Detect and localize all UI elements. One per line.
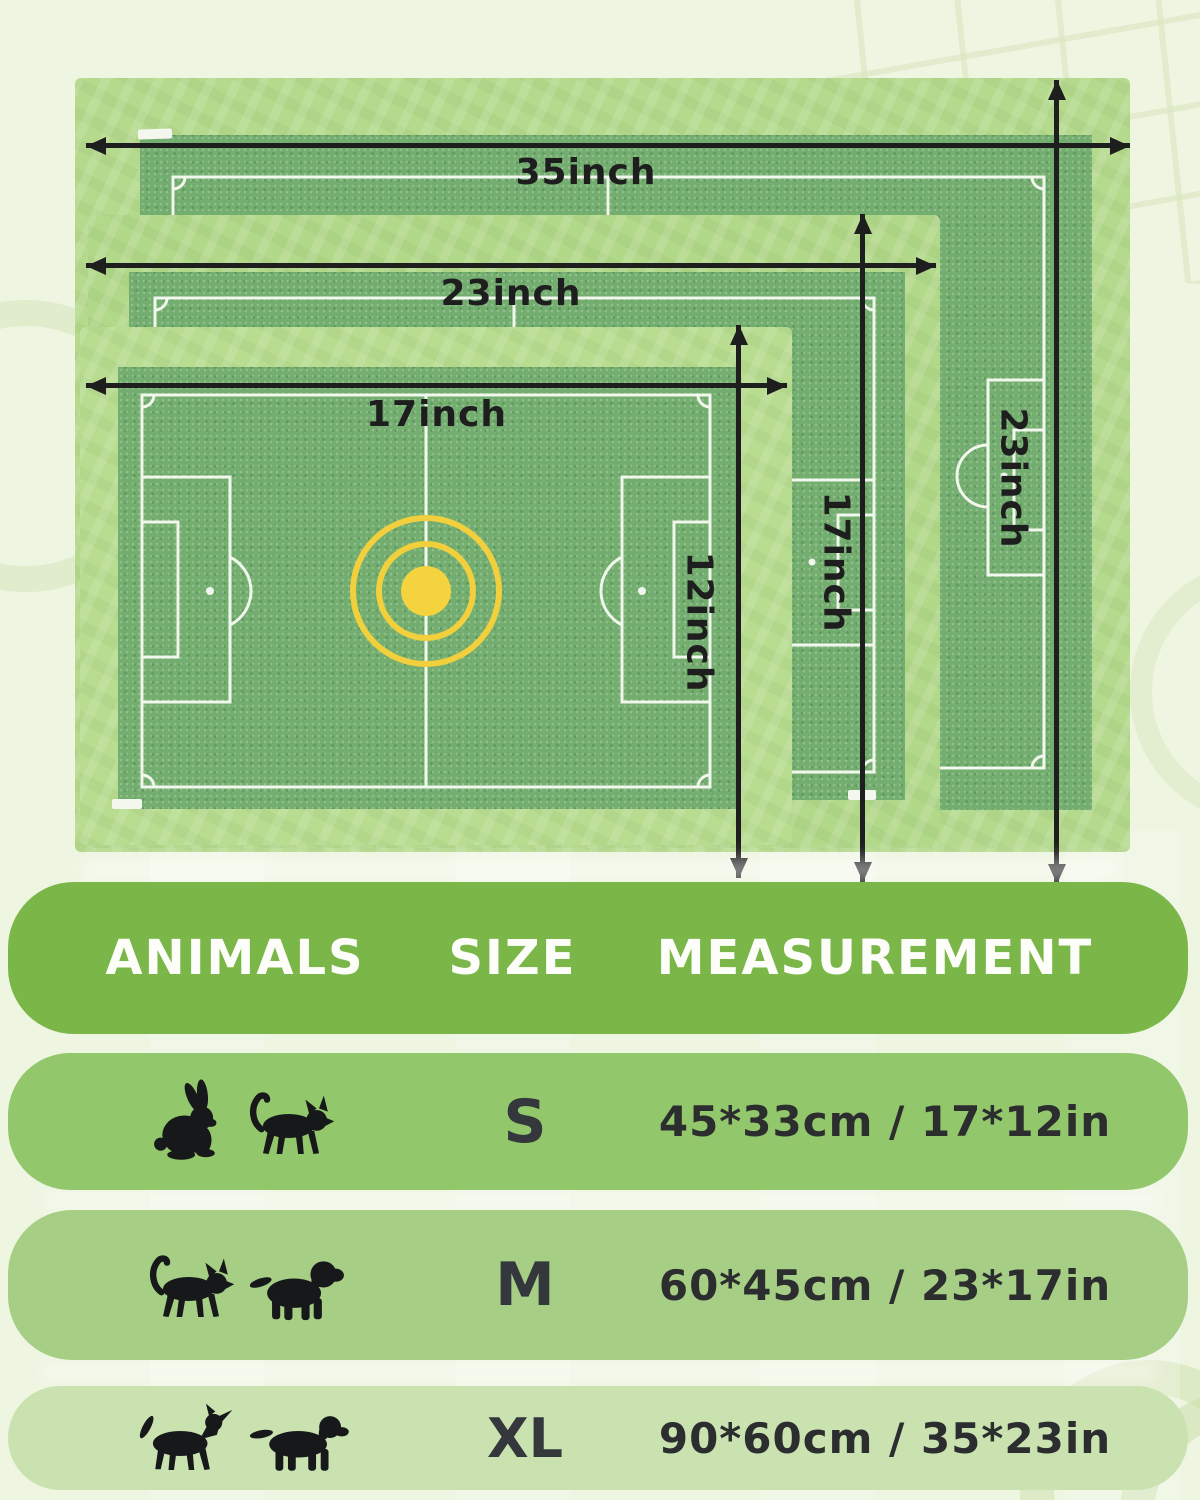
row-xl-animal-icons: [115, 1386, 375, 1490]
height-label-xl: 23inch: [993, 393, 1034, 563]
dog-icon: [250, 1399, 354, 1477]
tape-mark: [138, 128, 172, 139]
glow-decor: [40, 1364, 1160, 1379]
row-s-measurement: 45*33cm / 17*12in: [645, 1053, 1125, 1190]
width-arrow-s: [86, 383, 787, 388]
height-arrow-xl: [1054, 80, 1059, 884]
table-row-s: S 45*33cm / 17*12in: [8, 1053, 1188, 1190]
width-label-s: 17inch: [86, 394, 787, 435]
height-label-s: 12inch: [679, 537, 720, 707]
rabbit-icon: [150, 1079, 232, 1165]
row-xl-measurement: 90*60cm / 35*23in: [645, 1386, 1125, 1490]
tape-mark: [112, 799, 142, 809]
height-arrow-m: [860, 214, 865, 882]
row-m-measurement: 60*45cm / 23*17in: [645, 1210, 1125, 1360]
glow-decor: [80, 860, 1120, 880]
table-header: ANIMALS SIZE MEASUREMENT: [8, 882, 1188, 1034]
height-label-m: 17inch: [816, 477, 857, 647]
cat-icon: [242, 1082, 340, 1162]
row-s-size-label: S: [420, 1053, 630, 1190]
row-m-animal-icons: [115, 1210, 375, 1360]
pee-pad-size-infographic: 35inch 23inch 17inch 23inch 17inch 12inc…: [0, 0, 1200, 1500]
glow-decor: [40, 1194, 1160, 1209]
row-m-size-label: M: [420, 1210, 630, 1360]
width-arrow-m: [86, 263, 936, 268]
width-label-m: 23inch: [86, 273, 936, 314]
width-arrow-xl: [86, 143, 1130, 148]
header-size: SIZE: [400, 882, 625, 1034]
row-s-animal-icons: [115, 1053, 375, 1190]
puppy-icon: [250, 1244, 348, 1326]
cat-icon: [142, 1245, 240, 1325]
header-animals: ANIMALS: [70, 882, 400, 1034]
header-measurement: MEASUREMENT: [640, 882, 1110, 1034]
row-xl-size-label: XL: [420, 1386, 630, 1490]
dog-icon: [136, 1399, 240, 1477]
table-row-m: M 60*45cm / 23*17in: [8, 1210, 1188, 1360]
table-row-xl: XL 90*60cm / 35*23in: [8, 1386, 1188, 1490]
width-label-xl: 35inch: [86, 152, 1086, 193]
